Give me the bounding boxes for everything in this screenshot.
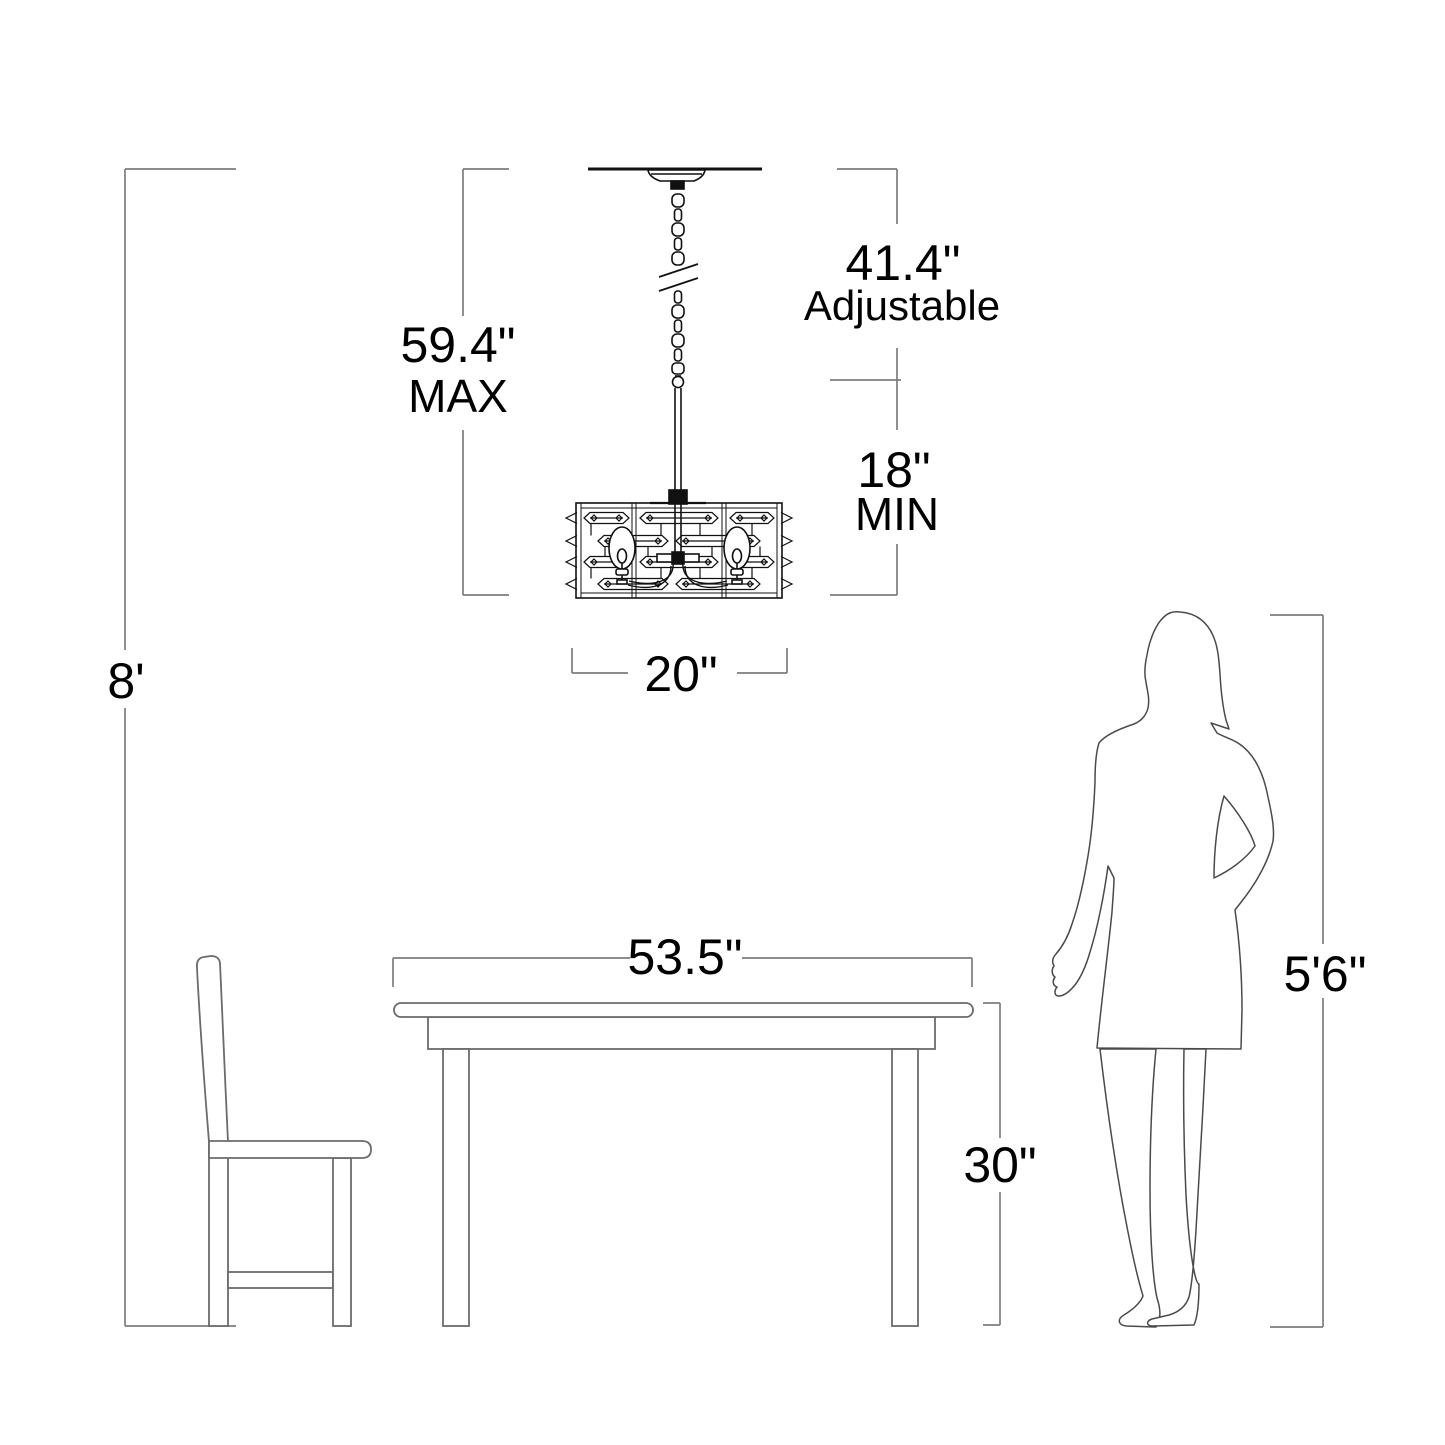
table-leg-left bbox=[443, 1049, 469, 1326]
chandelier-dimension-diagram: 8' 59.4" MAX 41.4" Adjustable 18" MIN 20… bbox=[0, 0, 1445, 1445]
candle-left bbox=[609, 527, 635, 584]
label-ceiling-height: 8' bbox=[107, 653, 144, 709]
canopy bbox=[648, 170, 705, 189]
downrod bbox=[673, 376, 684, 497]
chain-break-icon bbox=[659, 264, 698, 291]
table-top bbox=[394, 1003, 973, 1017]
table-leg-right bbox=[892, 1049, 918, 1326]
candle-right bbox=[724, 527, 750, 584]
chair-seat bbox=[209, 1141, 371, 1158]
table-apron bbox=[428, 1017, 935, 1049]
dining-table bbox=[394, 1003, 973, 1326]
label-table-width: 53.5" bbox=[627, 929, 742, 985]
label-fixture-width: 20" bbox=[644, 646, 717, 702]
chandelier bbox=[566, 170, 792, 598]
label-min-drop-word: MIN bbox=[855, 488, 939, 540]
diagram-svg: 8' 59.4" MAX 41.4" Adjustable 18" MIN 20… bbox=[0, 0, 1445, 1445]
chair-stretcher bbox=[228, 1272, 333, 1288]
person-silhouette bbox=[1052, 612, 1273, 1327]
person-leg-right bbox=[1148, 1049, 1206, 1326]
label-adjustable-word: Adjustable bbox=[804, 282, 1000, 329]
dining-chair bbox=[197, 956, 371, 1326]
chair-front-leg bbox=[333, 1158, 351, 1326]
label-table-height: 30" bbox=[963, 1137, 1036, 1193]
person-leg-left bbox=[1100, 1049, 1160, 1327]
label-max-drop-value: 59.4" bbox=[400, 317, 515, 373]
chandelier-fixture bbox=[566, 490, 792, 598]
label-person-height: 5'6" bbox=[1284, 946, 1367, 1002]
label-max-drop-word: MAX bbox=[408, 370, 508, 422]
